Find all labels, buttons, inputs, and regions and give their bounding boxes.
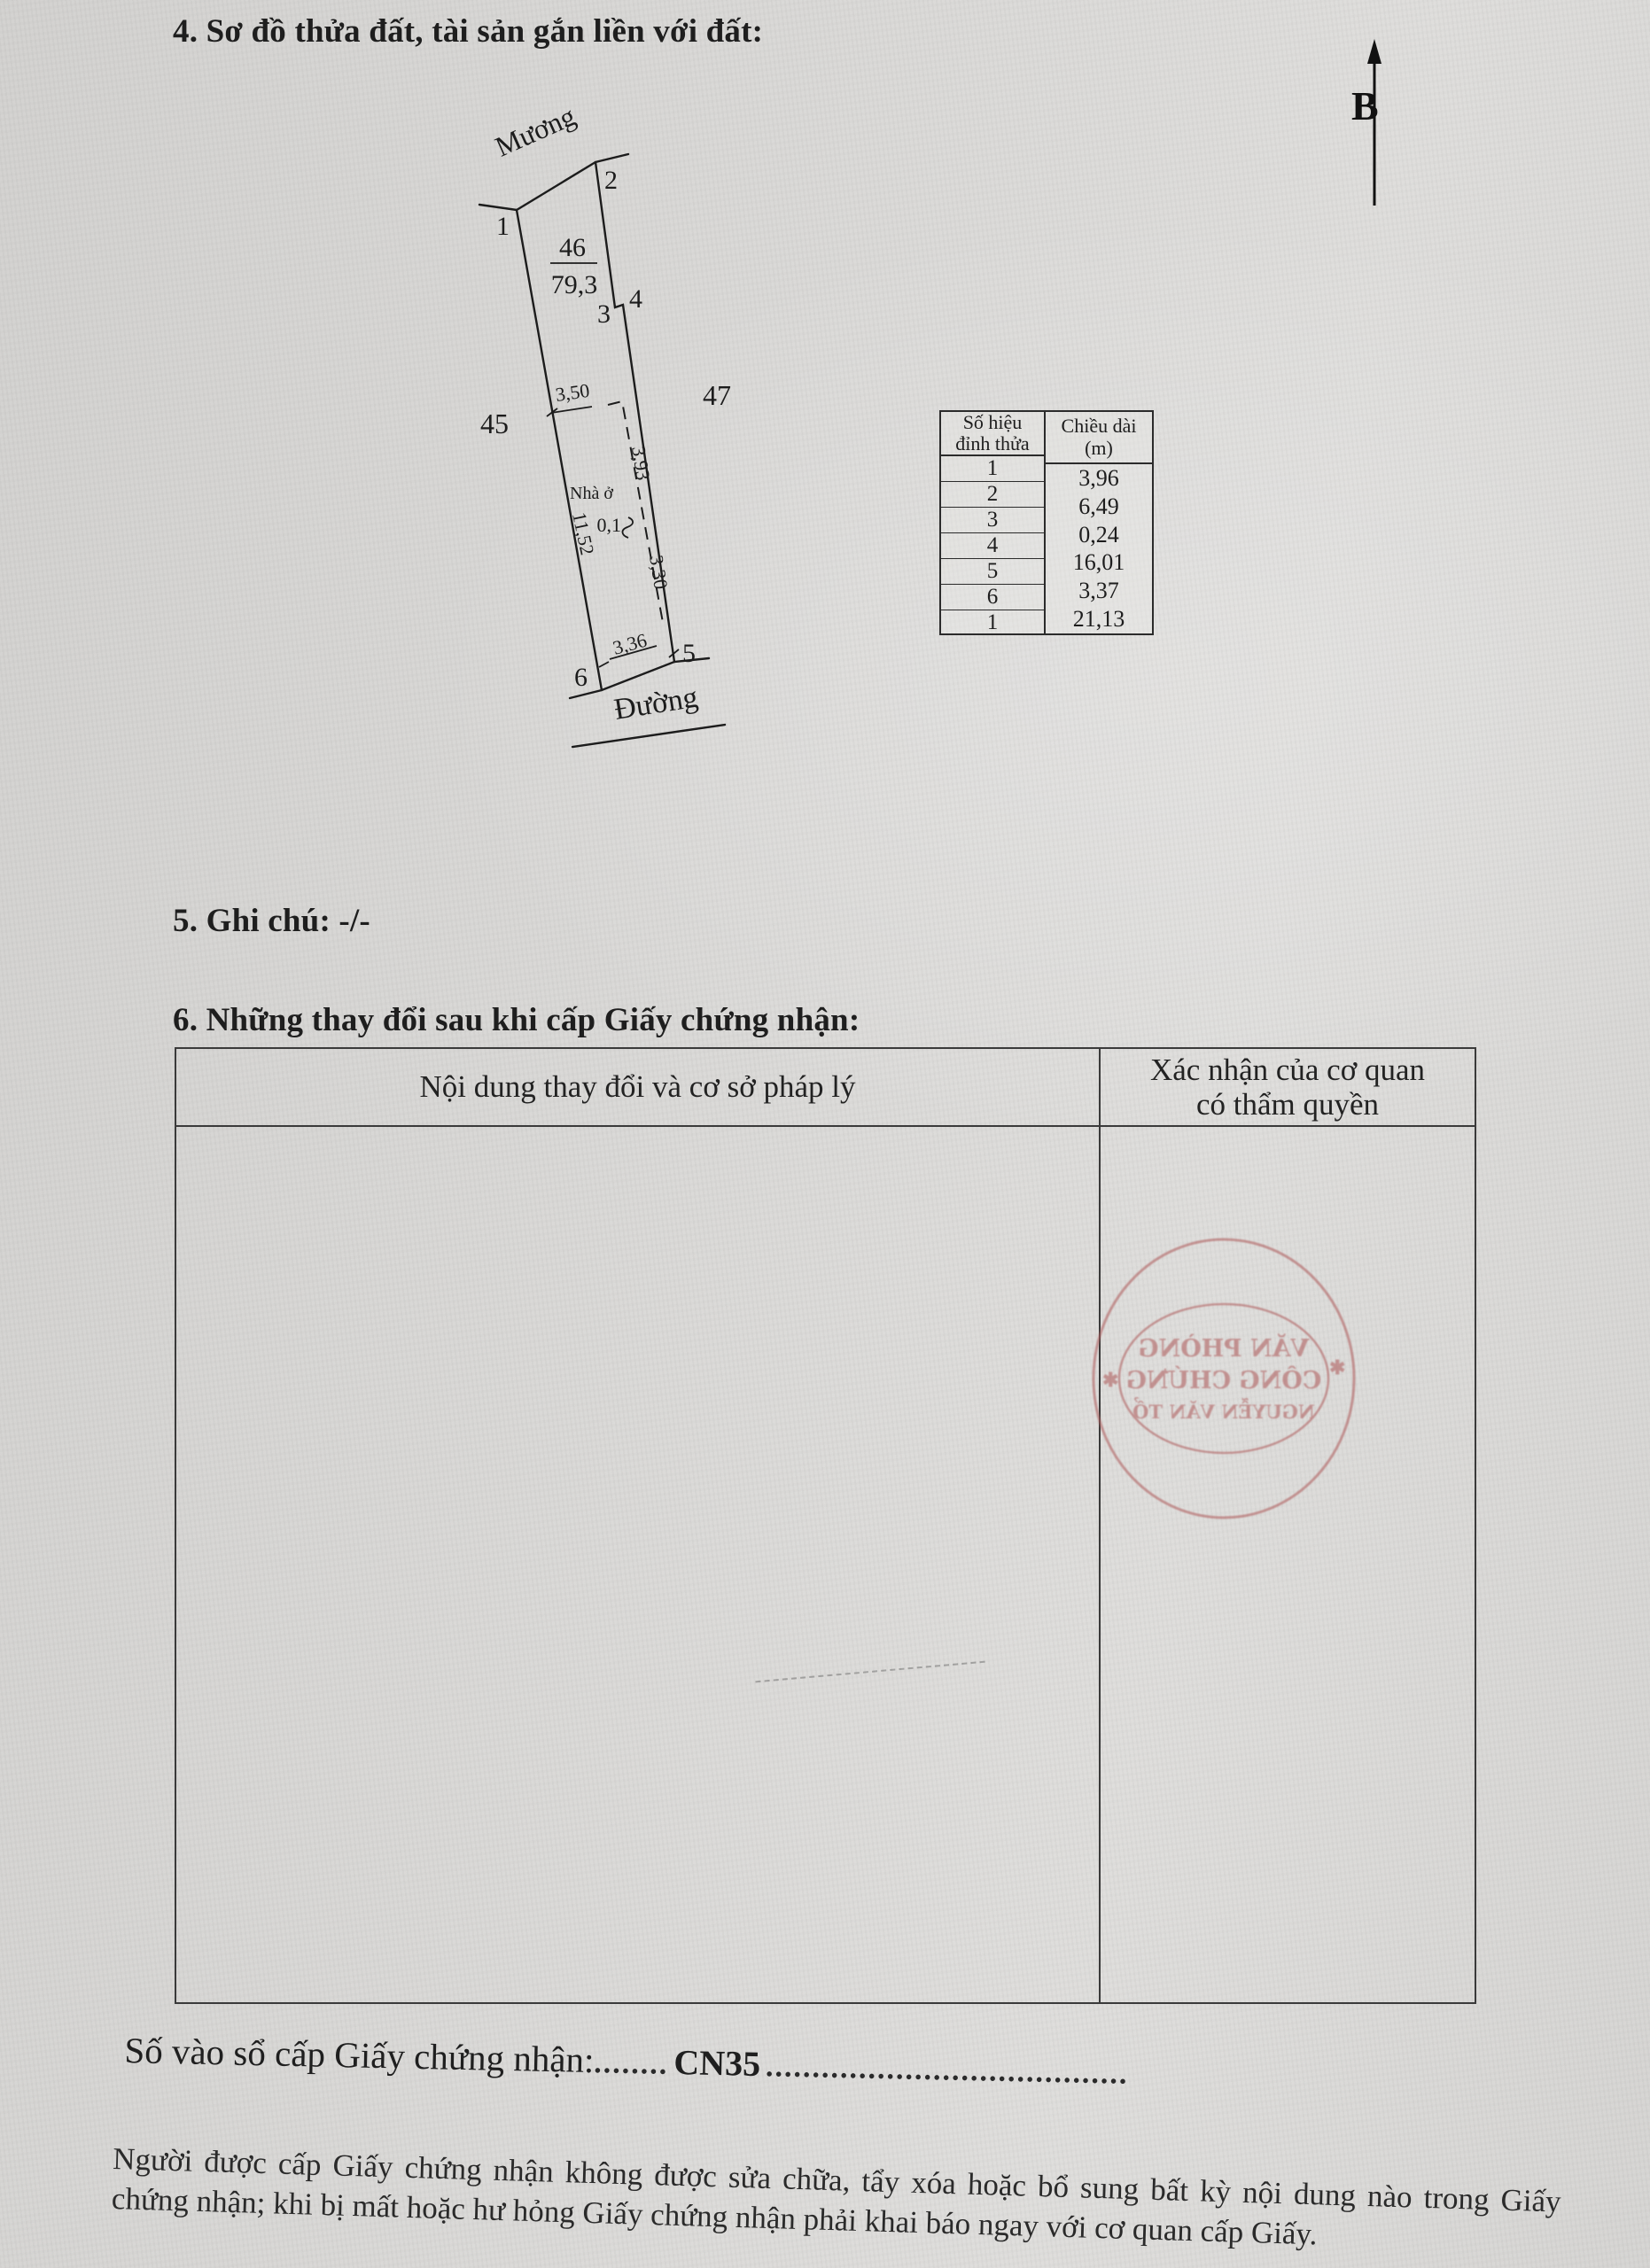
dim-top-width: 3,50 [554,379,591,406]
house-gap-squiggle [622,517,633,538]
right-parcel-number: 47 [703,379,731,411]
edge-length: 0,24 [1046,522,1152,548]
notary-stamp: ✱ ✱ VĂN PHÒNG CÔNG CHỨNG NGUYỄN VĂN TỔ [1088,1234,1359,1523]
edge-table-length-column: Chiều dài (m) 3,96 6,49 0,24 16,01 3,37 … [1046,412,1152,633]
changes-confirm-header-line1: Xác nhận của cơ quan [1150,1052,1425,1087]
vertex-label-4: 4 [629,284,642,314]
section4-title: 4. Sơ đồ thửa đất, tài sản gắn liền với … [173,12,763,50]
tick-336-left [599,662,609,667]
registry-value: CN35 [668,2042,767,2084]
vertex-row: 1 [941,610,1044,635]
dim-house-upper: 3,93 [627,445,655,482]
changes-confirm-header: Xác nhận của cơ quan có thẩm quyền [1101,1049,1475,1125]
dim-line-350 [551,407,592,413]
edge-length: 3,96 [1046,465,1152,492]
vertex-row: 5 [941,559,1044,585]
edge-table-length-header: Chiều dài (m) [1046,412,1152,464]
north-arrow: B [1329,35,1427,213]
edge-table-vertex-header: Số hiệu đỉnh thửa [941,412,1044,456]
registry-label: Số vào sổ cấp Giấy chứng nhận: [124,2030,595,2080]
dim-left-edge: 11,52 [568,510,599,557]
vertex-row: 6 [941,585,1044,610]
edge-length: 3,37 [1046,578,1152,604]
dim-house-lower: 3,30 [645,554,673,591]
edge-length-table: Số hiệu đỉnh thửa 1 2 3 4 5 6 1 Chiều dà… [939,410,1154,635]
dim-house-gap: 0,1 [597,514,622,536]
vertex-label-5: 5 [682,639,696,668]
changes-content-cell [176,1127,1101,2002]
north-arrow-head [1367,39,1381,64]
stamp-star-left: ✱ [1102,1369,1118,1392]
north-label: B [1351,83,1379,128]
vertex-label-2: 2 [604,166,618,195]
dim-bottom-width: 3,36 [611,629,650,659]
stamp-line1: VĂN PHÒNG [1138,1332,1310,1363]
section6-title: 6. Những thay đổi sau khi cấp Giấy chứng… [173,1001,860,1039]
road-label: Đường [611,681,700,726]
parcel-sketch: Mương 1 2 3 4 5 6 46 79,3 45 47 3,50 3,9… [470,84,824,757]
leader-dots: ....................................... [766,2050,1129,2091]
footer-note: Người được cấp Giấy chứng nhận không đượ… [111,2140,1561,2262]
edge-length: 6,49 [1046,493,1152,520]
vertex-label-6: 6 [574,663,588,692]
vertex-row: 3 [941,508,1044,533]
stamp-line3: NGUYỄN VĂN TỔ [1132,1397,1315,1423]
house-label: Nhà ở [570,484,613,503]
road-edge-line [572,725,725,747]
changes-content-header: Nội dung thay đổi và cơ sở pháp lý [176,1049,1101,1125]
parcel-area: 79,3 [551,270,598,299]
changes-table-header-row: Nội dung thay đổi và cơ sở pháp lý Xác n… [176,1049,1475,1127]
edge-length: 16,01 [1046,549,1152,576]
registry-number-line: Số vào sổ cấp Giấy chứng nhận:........CN… [124,2029,1188,2093]
vertex-label-3: 3 [597,299,611,329]
vertex-row: 4 [941,533,1044,559]
stamp-star-right: ✱ [1329,1356,1345,1379]
vertex-label-1: 1 [496,212,510,241]
edge-table-vertex-column: Số hiệu đỉnh thửa 1 2 3 4 5 6 1 [941,412,1046,633]
certificate-page: 4. Sơ đồ thửa đất, tài sản gắn liền với … [0,0,1650,2268]
changes-table: Nội dung thay đổi và cơ sở pháp lý Xác n… [175,1047,1476,2004]
vertex-row: 2 [941,482,1044,508]
canal-label: Mương [490,99,580,162]
edge-length: 21,13 [1046,606,1152,633]
changes-confirm-header-line2: có thẩm quyền [1196,1087,1379,1122]
left-parcel-number: 45 [480,408,509,439]
parcel-number: 46 [559,233,586,262]
section5-title: 5. Ghi chú: -/- [173,902,370,940]
stamp-line2: CÔNG CHỨNG [1126,1364,1321,1394]
vertex-row: 1 [941,456,1044,482]
leader-dots: ........ [594,2047,669,2081]
